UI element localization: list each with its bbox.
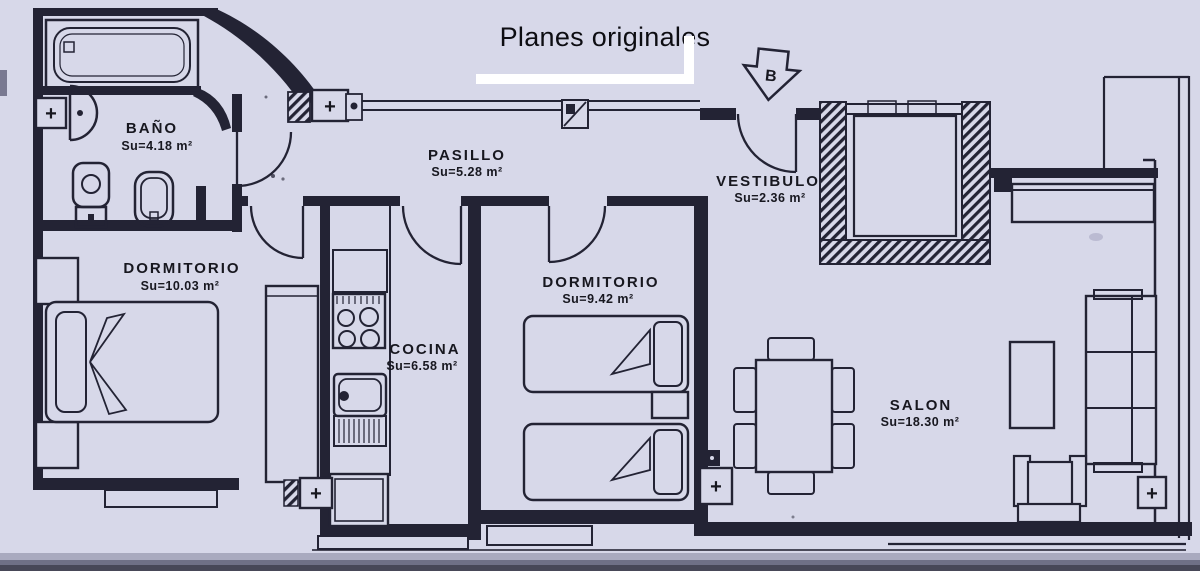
- floor-plan-drawing: + + + + +: [0, 0, 1200, 571]
- bedroom2-door: [549, 206, 605, 262]
- radiator: +: [700, 468, 732, 504]
- room-area-pasillo: Su=5.28 m²: [431, 165, 502, 179]
- scan-edge-shadow: [0, 565, 1200, 571]
- bedroom1-door: [251, 206, 303, 258]
- radiator-symbol: +: [324, 96, 336, 118]
- chair: [734, 368, 756, 412]
- room-area-vestibulo: Su=2.36 m²: [734, 191, 805, 205]
- toilet: [73, 163, 109, 227]
- radiator-symbol: +: [45, 103, 57, 125]
- nightstand: [36, 258, 78, 304]
- chair: [832, 424, 854, 468]
- nightstand: [652, 392, 688, 418]
- room-name-dormitorio1: DORMITORIO: [123, 260, 240, 277]
- duct: [288, 92, 310, 122]
- duct: [704, 450, 720, 466]
- room-area-dormitorio1: Su=10.03 m²: [141, 279, 220, 293]
- room-name-dormitorio2: DORMITORIO: [542, 274, 659, 291]
- room-area-salon: Su=18.30 m²: [881, 415, 960, 429]
- bidet: [135, 172, 173, 226]
- radiator: +: [36, 98, 66, 128]
- kitchen: [330, 206, 390, 526]
- radiator-symbol: +: [710, 476, 722, 498]
- duct: [284, 480, 298, 506]
- chair: [734, 424, 756, 468]
- title-underline-end: [684, 36, 694, 84]
- room-area-dormitorio2: Su=9.42 m²: [562, 292, 633, 306]
- scanned-floor-plan: + + + + +: [0, 0, 1200, 571]
- column: [994, 170, 1012, 192]
- room-area-cocina: Su=6.58 m²: [386, 359, 457, 373]
- sideboard: [1012, 184, 1154, 222]
- radiator: +: [1138, 477, 1166, 508]
- room-name-pasillo: PASILLO: [428, 147, 506, 164]
- duct: [346, 94, 362, 120]
- radiator-symbol: +: [310, 483, 322, 505]
- room-name-vestibulo: VESTIBULO: [716, 173, 820, 190]
- kitchen-window: [318, 536, 468, 549]
- coffee-table: [1010, 342, 1054, 428]
- wardrobe: [266, 286, 318, 482]
- nightstand: [36, 422, 78, 468]
- entrance-marker-label: B: [764, 67, 777, 85]
- sofa: [1086, 290, 1156, 472]
- title-underline: [476, 74, 694, 84]
- duct: [562, 100, 588, 128]
- radiator-symbol: +: [1146, 483, 1158, 505]
- bedroom2-window: [487, 526, 592, 545]
- radiator: +: [312, 90, 348, 121]
- washing-machine: [330, 474, 388, 526]
- room-name-salon: SALON: [890, 397, 953, 414]
- stove: [333, 294, 385, 348]
- tub-tap: [64, 42, 74, 52]
- twin-bed: [524, 424, 688, 500]
- entrance-door: [738, 114, 796, 172]
- bedroom1-window: [105, 490, 217, 507]
- chair: [832, 368, 854, 412]
- faucet: [339, 391, 349, 401]
- room-area-bano: Su=4.18 m²: [121, 139, 192, 153]
- kitchen-sink: [334, 374, 386, 416]
- cabinet: [333, 250, 387, 292]
- double-bed: [46, 302, 218, 422]
- radiator: +: [300, 478, 332, 508]
- chair: [768, 472, 814, 494]
- kitchen-door: [403, 206, 461, 264]
- room-name-cocina: COCINA: [389, 341, 460, 358]
- dining-table: [756, 360, 832, 472]
- drainer: [334, 416, 386, 446]
- plan-title: Planes originales: [470, 22, 740, 53]
- chair: [768, 338, 814, 360]
- dining-set: [734, 338, 854, 494]
- bedroom2: [524, 316, 688, 500]
- bathtub: [46, 20, 198, 90]
- entrance-arrow: B: [741, 47, 802, 103]
- elevator-shaft: [820, 101, 1012, 264]
- room-name-bano: BAÑO: [126, 119, 178, 137]
- twin-bed: [524, 316, 688, 392]
- armchair: [1014, 456, 1086, 522]
- elevator-car: [854, 116, 956, 236]
